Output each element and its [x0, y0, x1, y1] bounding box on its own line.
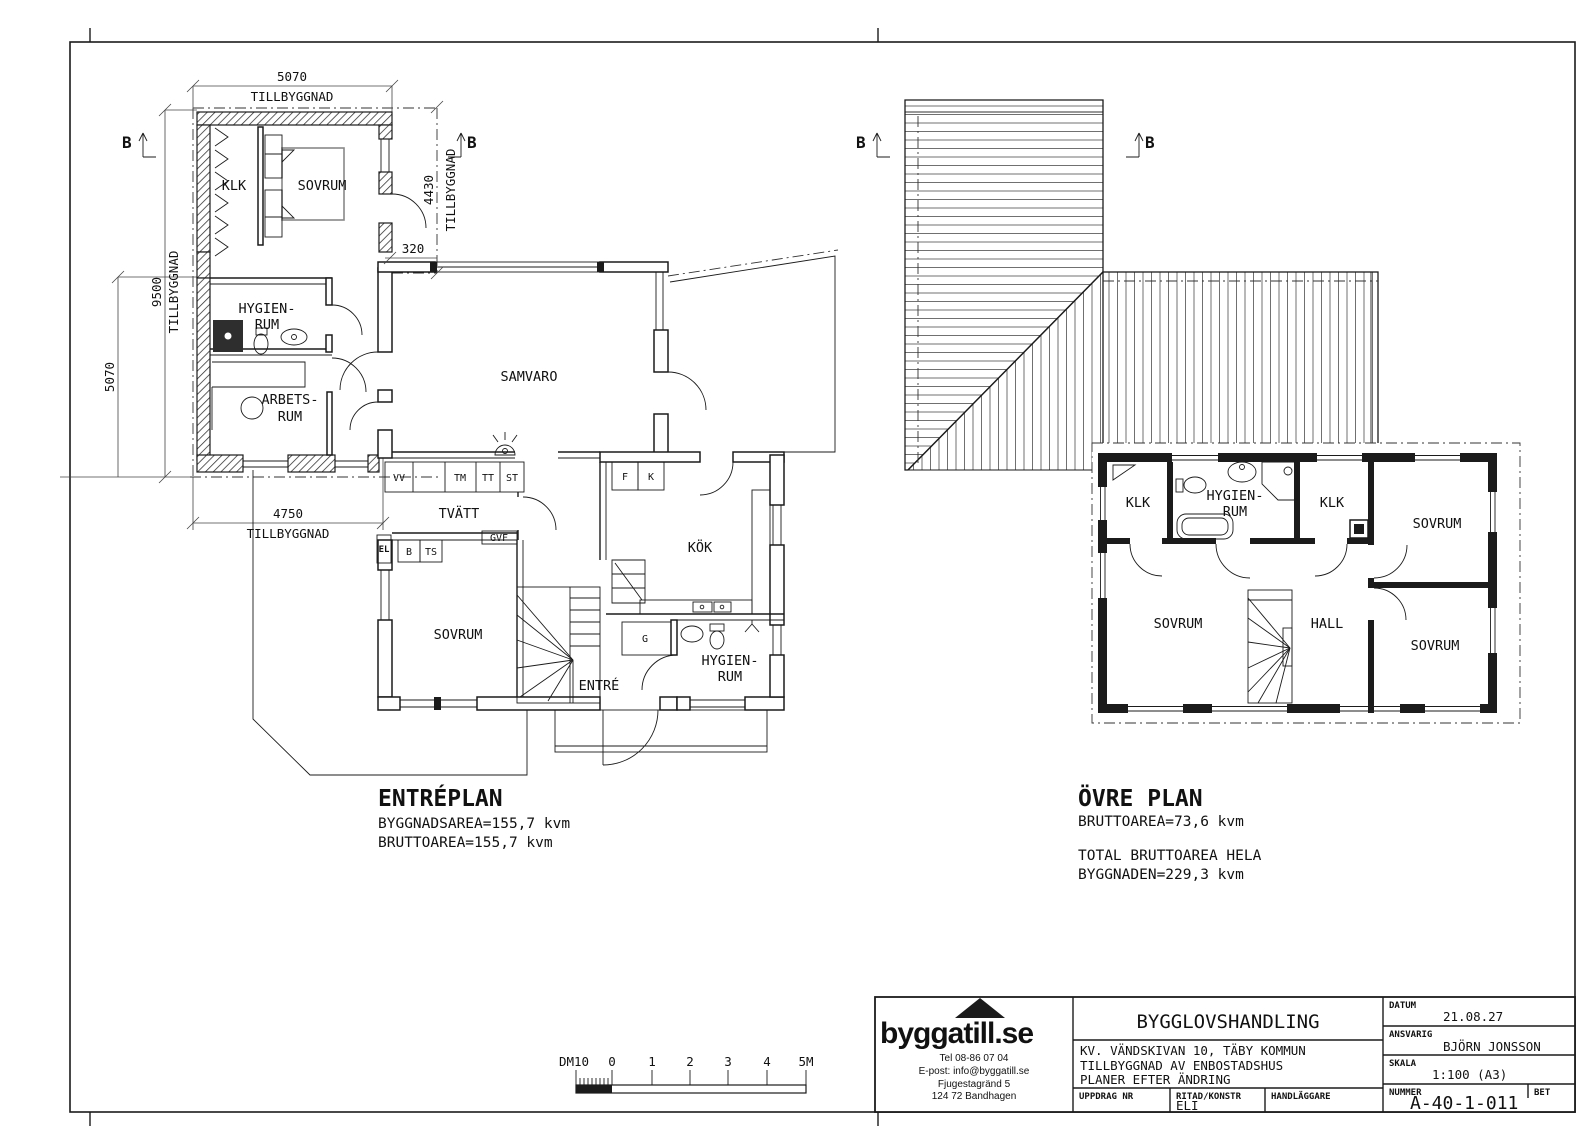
dim-left-label: TILLBYGGNAD: [166, 251, 181, 334]
scale-bar: DM10 0 1 2 3 4 5M: [559, 1054, 814, 1093]
ovreplan-caption: ÖVRE PLAN BRUTTOAREA=73,6 kvm TOTAL BRUT…: [1078, 784, 1262, 883]
doc-type: BYGGLOVSHANDLING: [1136, 1011, 1319, 1033]
uppdrag-label: UPPDRAG NR: [1079, 1092, 1134, 1102]
room-label-hygien2: RUM: [255, 317, 279, 333]
room-label-samvaro: SAMVARO: [501, 369, 558, 385]
entreplan-drawing: B B 5070 TILLBYGGNAD 9500 TILLBYGGNAD 50…: [60, 69, 838, 851]
door-arc: [700, 462, 733, 495]
ovreplan-area-2: TOTAL BRUTTOAREA HELA: [1078, 848, 1262, 864]
room-label-klk1: KLK: [1126, 495, 1151, 511]
entreplan-area-1: BYGGNADSAREA=155,7 kvm: [378, 816, 570, 832]
scale-label-0: 0: [608, 1054, 616, 1069]
room-label-sovrum-br: SOVRUM: [1411, 638, 1460, 654]
scale-label-1: 1: [648, 1054, 656, 1069]
room-label-sovrum-tr: SOVRUM: [1413, 516, 1462, 532]
contact-tel: Tel 08-86 07 04: [940, 1053, 1009, 1064]
nummer-value: A-40-1-011: [1410, 1093, 1518, 1114]
title-block: byggatill.se Tel 08-86 07 04 E-post: inf…: [875, 997, 1575, 1114]
ansvarig-label: ANSVARIG: [1389, 1030, 1432, 1040]
label-gvf: GVF: [490, 533, 508, 544]
section-letter: B: [467, 133, 477, 152]
dim-bottom-label: TILLBYGGNAD: [247, 526, 330, 541]
ansvarig-value: BJÖRN JONSSON: [1443, 1038, 1541, 1054]
room-label-klk: KLK: [222, 178, 247, 194]
scale-label-2: 2: [686, 1054, 694, 1069]
logo-text: byggatill.se: [880, 1017, 1033, 1050]
label-k: K: [648, 472, 654, 483]
label-el: EL: [379, 545, 390, 555]
floorplan-svg: B B 5070 TILLBYGGNAD 9500 TILLBYGGNAD 50…: [0, 0, 1596, 1140]
bet-label: BET: [1534, 1088, 1551, 1098]
fixtures-ground: [212, 128, 770, 765]
sink-symbol: [281, 329, 307, 345]
door-arc: [642, 655, 677, 690]
label-vv: VV: [393, 473, 405, 484]
entreplan-title: ENTRÉPLAN: [378, 784, 503, 812]
label-b: B: [406, 547, 412, 558]
sink-symbol: [681, 626, 703, 642]
ritad-value: ELI: [1176, 1098, 1199, 1113]
chair-symbol: [241, 397, 263, 419]
datum-label: DATUM: [1389, 1001, 1417, 1011]
scale-label-3: 3: [724, 1054, 732, 1069]
room-label-sovrum-l: SOVRUM: [1154, 616, 1203, 632]
room-labels-entreplan: KLK SOVRUM HYGIEN- RUM ARBETS- RUM SAMVA…: [222, 178, 759, 694]
room-label-hygien: HYGIEN-: [1207, 488, 1264, 504]
datum-value: 21.08.27: [1443, 1009, 1503, 1024]
handlaggare-label: HANDLÄGGARE: [1271, 1091, 1331, 1102]
entreplan-area-2: BRUTTOAREA=155,7 kvm: [378, 835, 553, 851]
pantry-symbol: [612, 560, 645, 603]
room-label-kok: KÖK: [688, 538, 713, 556]
room-label-hall: HALL: [1311, 616, 1344, 632]
contact-city: 124 72 Bandhagen: [932, 1091, 1017, 1102]
room-label-hygien-b: HYGIEN-: [702, 653, 759, 669]
door-arc: [668, 372, 706, 410]
main-house-walls: [340, 256, 835, 710]
room-label-hygien-b2: RUM: [718, 669, 742, 685]
label-st: ST: [506, 473, 518, 484]
door-arc: [332, 305, 362, 335]
section-letter: B: [122, 133, 132, 152]
toilet-symbol: [710, 624, 724, 631]
scale-label-dm: DM10: [559, 1054, 589, 1069]
dim-top-value: 5070: [277, 69, 307, 84]
room-label-sovrum: SOVRUM: [298, 178, 347, 194]
room-label-arbets2: RUM: [278, 409, 302, 425]
project-line-1: KV. VÄNDSKIVAN 10, TÄBY KOMMUN: [1080, 1043, 1306, 1058]
ovreplan-area-1: BRUTTOAREA=73,6 kvm: [1078, 814, 1244, 830]
ovreplan-title: ÖVRE PLAN: [1078, 784, 1203, 812]
dim-left-inner-value: 5070: [102, 362, 117, 392]
dim-right-value: 4430: [421, 175, 436, 205]
label-g: G: [642, 634, 648, 645]
room-label-klk2: KLK: [1320, 495, 1345, 511]
dim-top-label: TILLBYGGNAD: [251, 89, 334, 104]
room-label-hygien2: RUM: [1223, 504, 1247, 520]
canopy-outline: [670, 256, 835, 452]
entreplan-caption: ENTRÉPLAN BYGGNADSAREA=155,7 kvm BRUTTOA…: [378, 784, 570, 851]
drawing-sheet: B B 5070 TILLBYGGNAD 9500 TILLBYGGNAD 50…: [0, 0, 1596, 1140]
room-label-entre: ENTRÉ: [579, 677, 620, 694]
dim-bottom-value: 4750: [273, 506, 303, 521]
shower-head-symbol: [745, 620, 759, 632]
label-tt: TT: [482, 473, 494, 484]
door-arc: [603, 710, 658, 765]
contact-email: E-post: info@byggatill.se: [919, 1066, 1030, 1077]
contact-street: Fjugestagränd 5: [938, 1079, 1011, 1090]
door-arc: [350, 402, 378, 430]
dim-left-value: 9500: [149, 277, 164, 307]
dim-right-label: TILLBYGGNAD: [443, 149, 458, 232]
label-tm: TM: [454, 473, 466, 484]
scale-label-5: 5M: [798, 1054, 813, 1069]
dim-offset-value: 320: [402, 241, 425, 256]
room-label-tvatt: TVÄTT: [439, 504, 480, 522]
ovreplan-drawing: B B: [856, 100, 1520, 883]
door-arc: [523, 497, 556, 530]
door-arc: [332, 358, 366, 392]
room-label-hygien: HYGIEN-: [239, 301, 296, 317]
room-label-arbets: ARBETS-: [262, 392, 319, 408]
section-markers-entreplan: B B: [122, 133, 477, 157]
section-letter: B: [1145, 133, 1155, 152]
room-label-sovrum-b: SOVRUM: [434, 627, 483, 643]
ovreplan-area-3: BYGGNADEN=229,3 kvm: [1078, 867, 1244, 883]
skala-value: 1:100 (A3): [1432, 1067, 1507, 1082]
scale-label-4: 4: [763, 1054, 771, 1069]
label-ts: TS: [425, 547, 437, 558]
skala-label: SKALA: [1389, 1059, 1417, 1069]
project-line-3: PLANER EFTER ÄNDRING: [1080, 1072, 1231, 1087]
kitchen-counter: [752, 490, 770, 614]
kitchen-sink: [693, 602, 712, 612]
section-letter: B: [856, 133, 866, 152]
project-line-2: TILLBYGGNAD AV ENBOSTADSHUS: [1080, 1058, 1283, 1073]
label-f: F: [622, 472, 628, 483]
roof-hatching: [905, 100, 1378, 470]
